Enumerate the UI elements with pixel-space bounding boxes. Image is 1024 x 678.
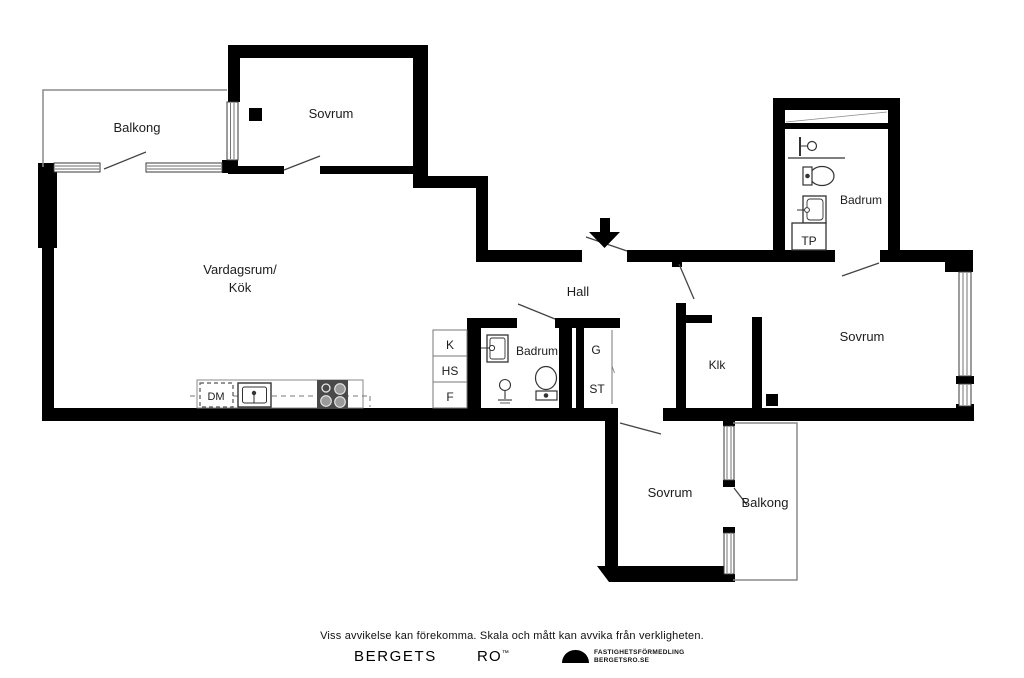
label-bedroom-right: Sovrum [840, 329, 885, 344]
label-bathroom-mid: Badrum [516, 344, 558, 358]
stove [317, 380, 348, 408]
sink-mid [481, 335, 508, 362]
label-closet-st: ST [589, 382, 605, 396]
label-balcony-bottom: Balkong [742, 495, 789, 510]
floorplan-canvas: Balkong Sovrum Vardagsrum/ Kök Hall Badr… [0, 0, 1024, 678]
label-cabinet-hs: HS [442, 364, 459, 378]
label-closet-g: G [591, 343, 600, 357]
window-bedroom-bottom-lower [724, 533, 734, 574]
door-swings [104, 152, 879, 505]
door-bathroom-right [842, 263, 879, 276]
label-cabinet-k: K [446, 338, 454, 352]
door-bedroom-top [284, 156, 320, 170]
shower-right [800, 137, 817, 156]
window-bedroom-bottom-upper [724, 426, 734, 480]
label-bedroom-top: Sovrum [309, 106, 354, 121]
pillar-top-bedroom [249, 108, 262, 121]
label-bedroom-bottom: Sovrum [648, 485, 693, 500]
toilet-mid [536, 367, 558, 401]
window-bedroom-top-left-wall [227, 102, 238, 160]
door-bedroom-bottom [620, 423, 661, 434]
label-dishwasher: DM [207, 391, 224, 403]
label-walkin-closet: Klk [709, 358, 727, 372]
floorplan-svg: Balkong Sovrum Vardagsrum/ Kök Hall Badr… [0, 0, 1024, 678]
entry-arrow-icon [589, 218, 620, 248]
shower-mid [498, 380, 512, 404]
label-balcony-top: Balkong [114, 120, 161, 135]
window-balcony-top-right [146, 163, 222, 172]
window-bedroom-right-upper [959, 272, 971, 376]
label-laundry-tp: TP [801, 234, 816, 248]
toilet-right [803, 167, 834, 186]
label-living-line1: Vardagsrum/ [203, 262, 277, 277]
label-bathroom-right: Badrum [840, 193, 882, 207]
cabinet-boxes [433, 330, 615, 408]
pillar-bedroom-right [766, 394, 778, 406]
walls [38, 45, 974, 582]
window-balcony-top-left [54, 163, 100, 172]
kitchen-sink [238, 383, 271, 407]
door-hall-passage [679, 264, 694, 299]
shaft-diagonal [786, 112, 887, 122]
door-bathroom-mid [518, 304, 555, 319]
label-hall: Hall [567, 284, 590, 299]
window-bedroom-right-lower [959, 384, 971, 406]
label-cabinet-f: F [446, 390, 453, 404]
label-living-line2: Kök [229, 280, 252, 295]
door-balcony-top [104, 152, 146, 169]
sink-right [797, 196, 826, 223]
